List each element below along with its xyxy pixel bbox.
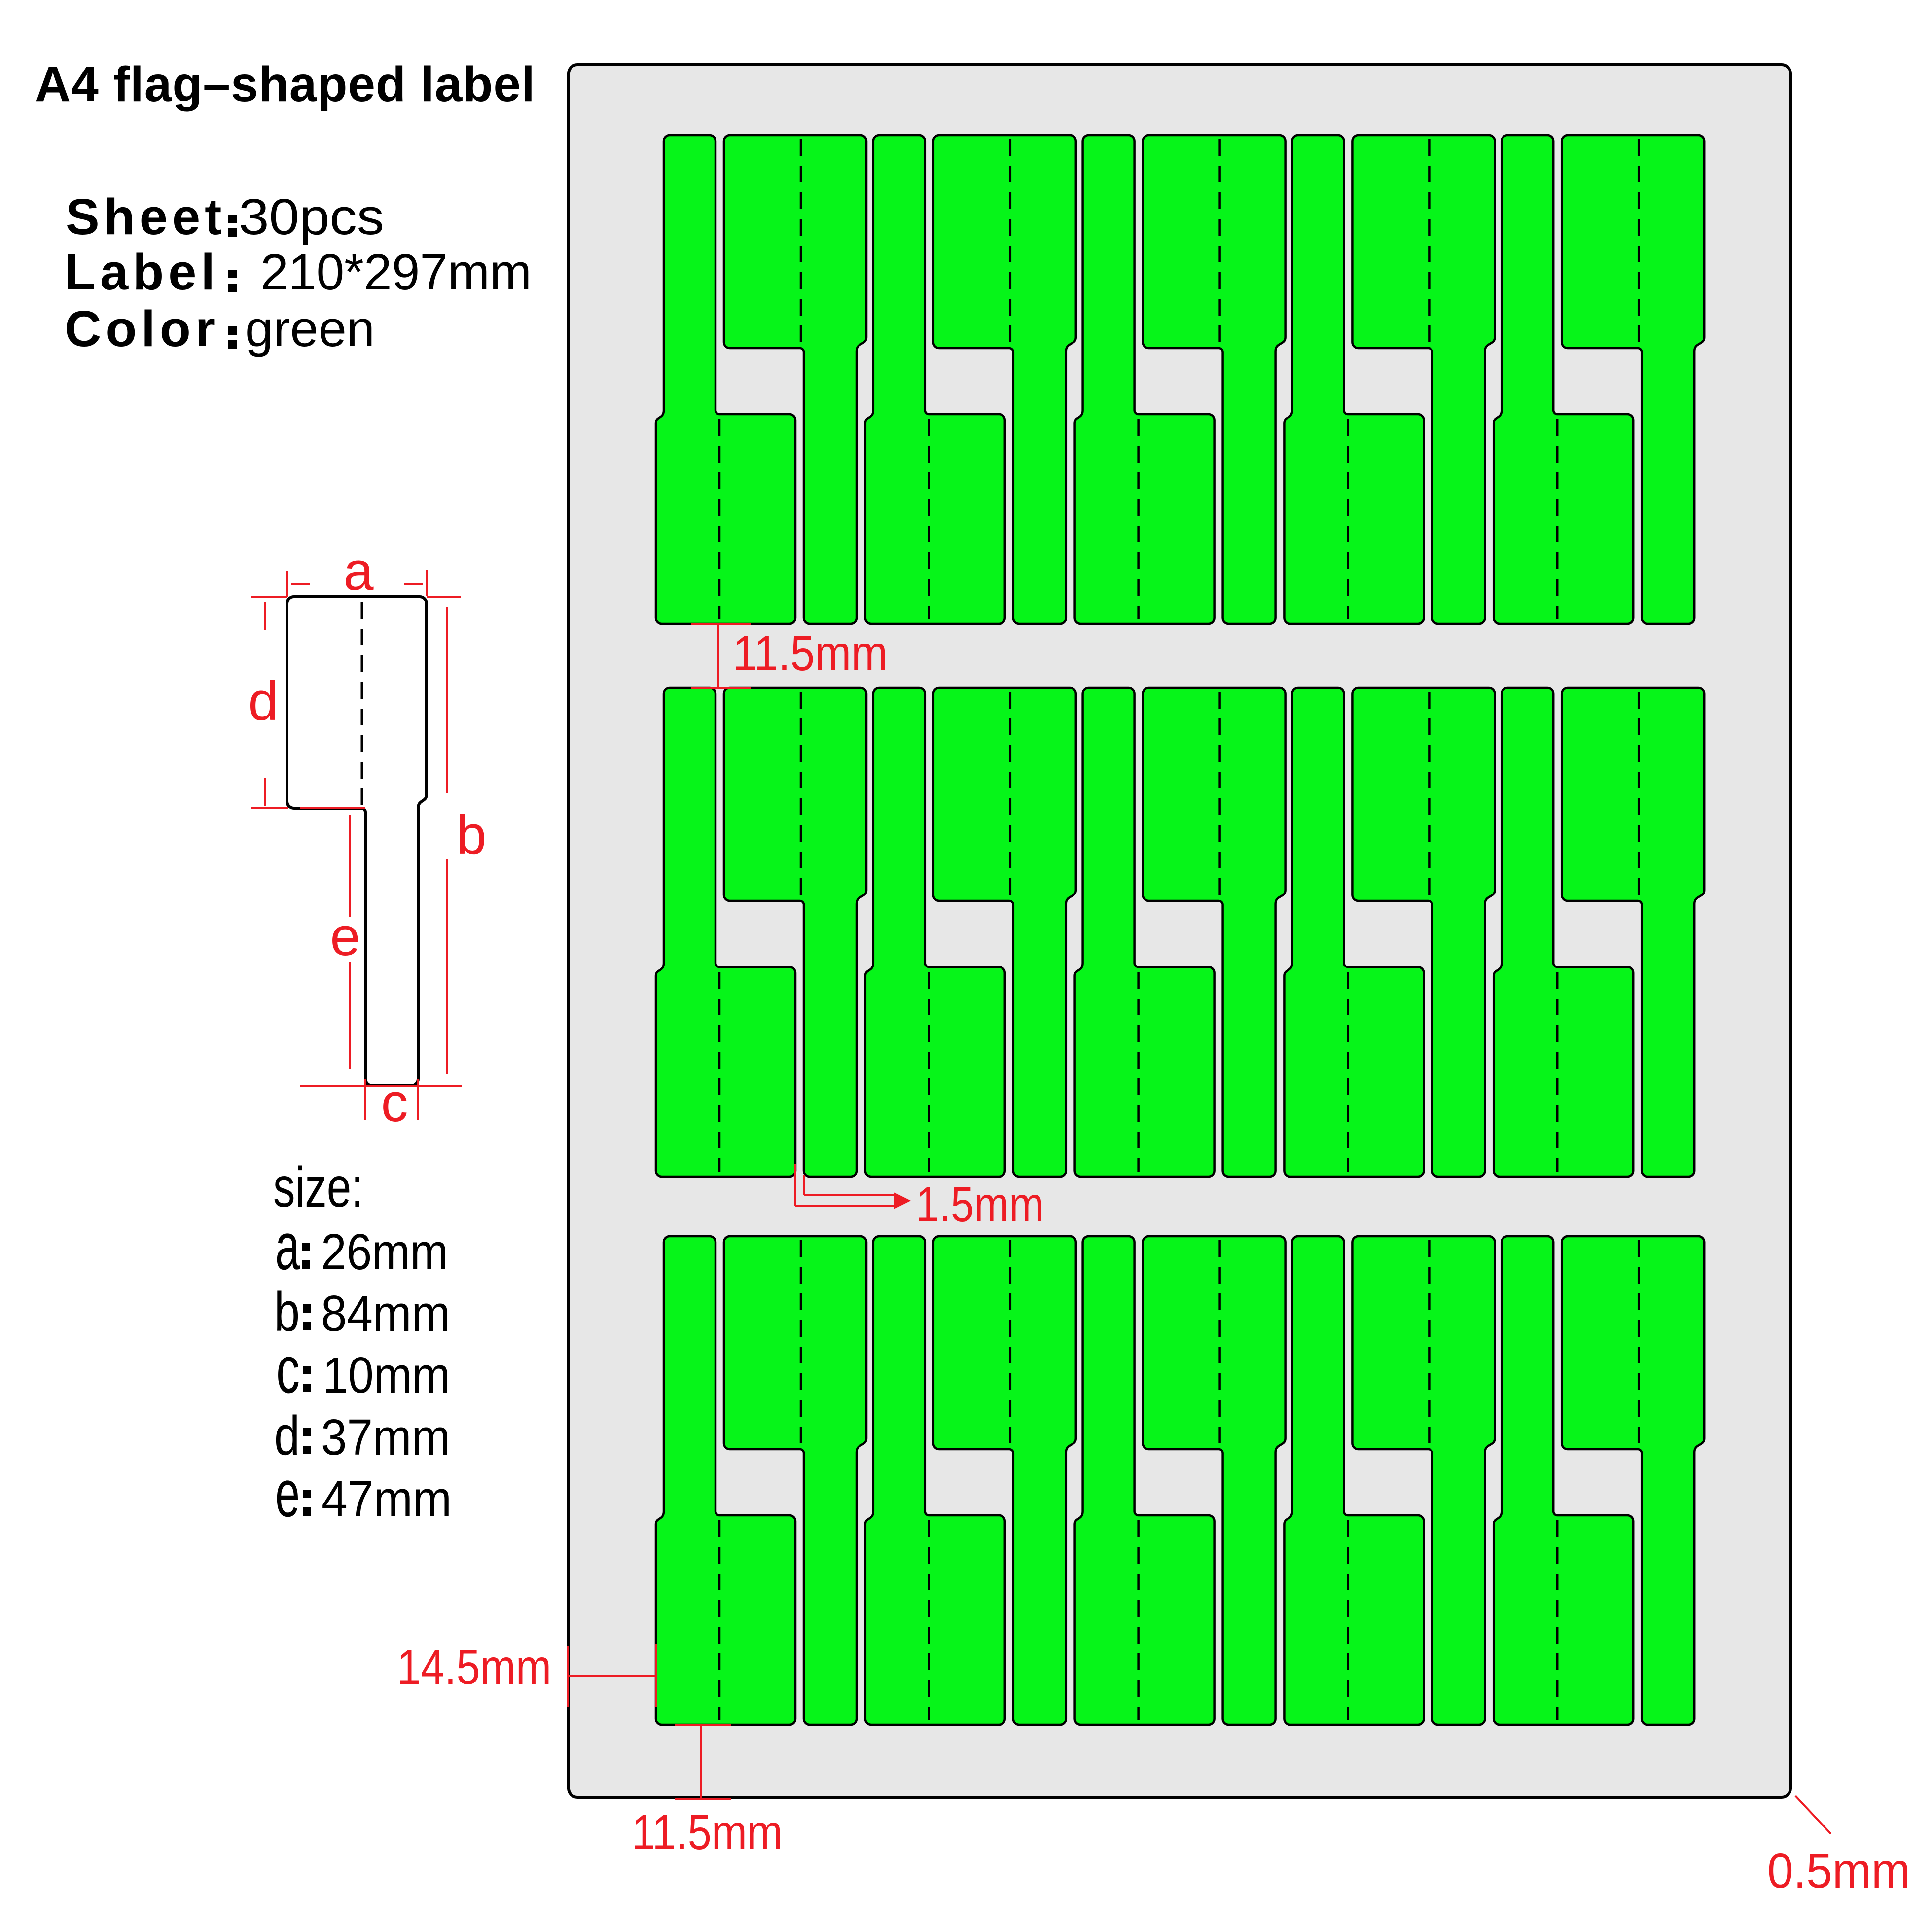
- svg-text:1.5mm: 1.5mm: [916, 1177, 1044, 1232]
- svg-text:47mm: 47mm: [322, 1470, 452, 1527]
- svg-text:0.5mm: 0.5mm: [1767, 1843, 1910, 1898]
- svg-text:37mm: 37mm: [321, 1409, 450, 1466]
- svg-text:c: c: [381, 1073, 408, 1133]
- svg-text:e: e: [275, 1456, 300, 1531]
- svg-text:210*297mm: 210*297mm: [260, 244, 532, 300]
- svg-text:a: a: [343, 541, 374, 602]
- svg-text:green: green: [245, 300, 375, 357]
- svg-text:e: e: [330, 906, 360, 967]
- svg-text:30pcs: 30pcs: [239, 188, 384, 245]
- svg-text:11.5mm: 11.5mm: [733, 626, 888, 681]
- svg-text:Color: Color: [65, 300, 219, 357]
- svg-text:14.5mm: 14.5mm: [397, 1640, 551, 1695]
- svg-text:Sheet: Sheet: [66, 188, 226, 245]
- svg-text:b: b: [456, 805, 486, 865]
- svg-text:d: d: [248, 671, 278, 732]
- svg-text:A4 flag–shaped label: A4 flag–shaped label: [35, 57, 536, 112]
- svg-text:84mm: 84mm: [321, 1285, 450, 1342]
- svg-text:c: c: [276, 1332, 300, 1407]
- svg-text:a: a: [275, 1209, 300, 1284]
- svg-text:11.5mm: 11.5mm: [632, 1805, 783, 1860]
- svg-text:Label: Label: [65, 244, 219, 300]
- svg-text:10mm: 10mm: [322, 1347, 450, 1403]
- svg-text:26mm: 26mm: [321, 1223, 448, 1280]
